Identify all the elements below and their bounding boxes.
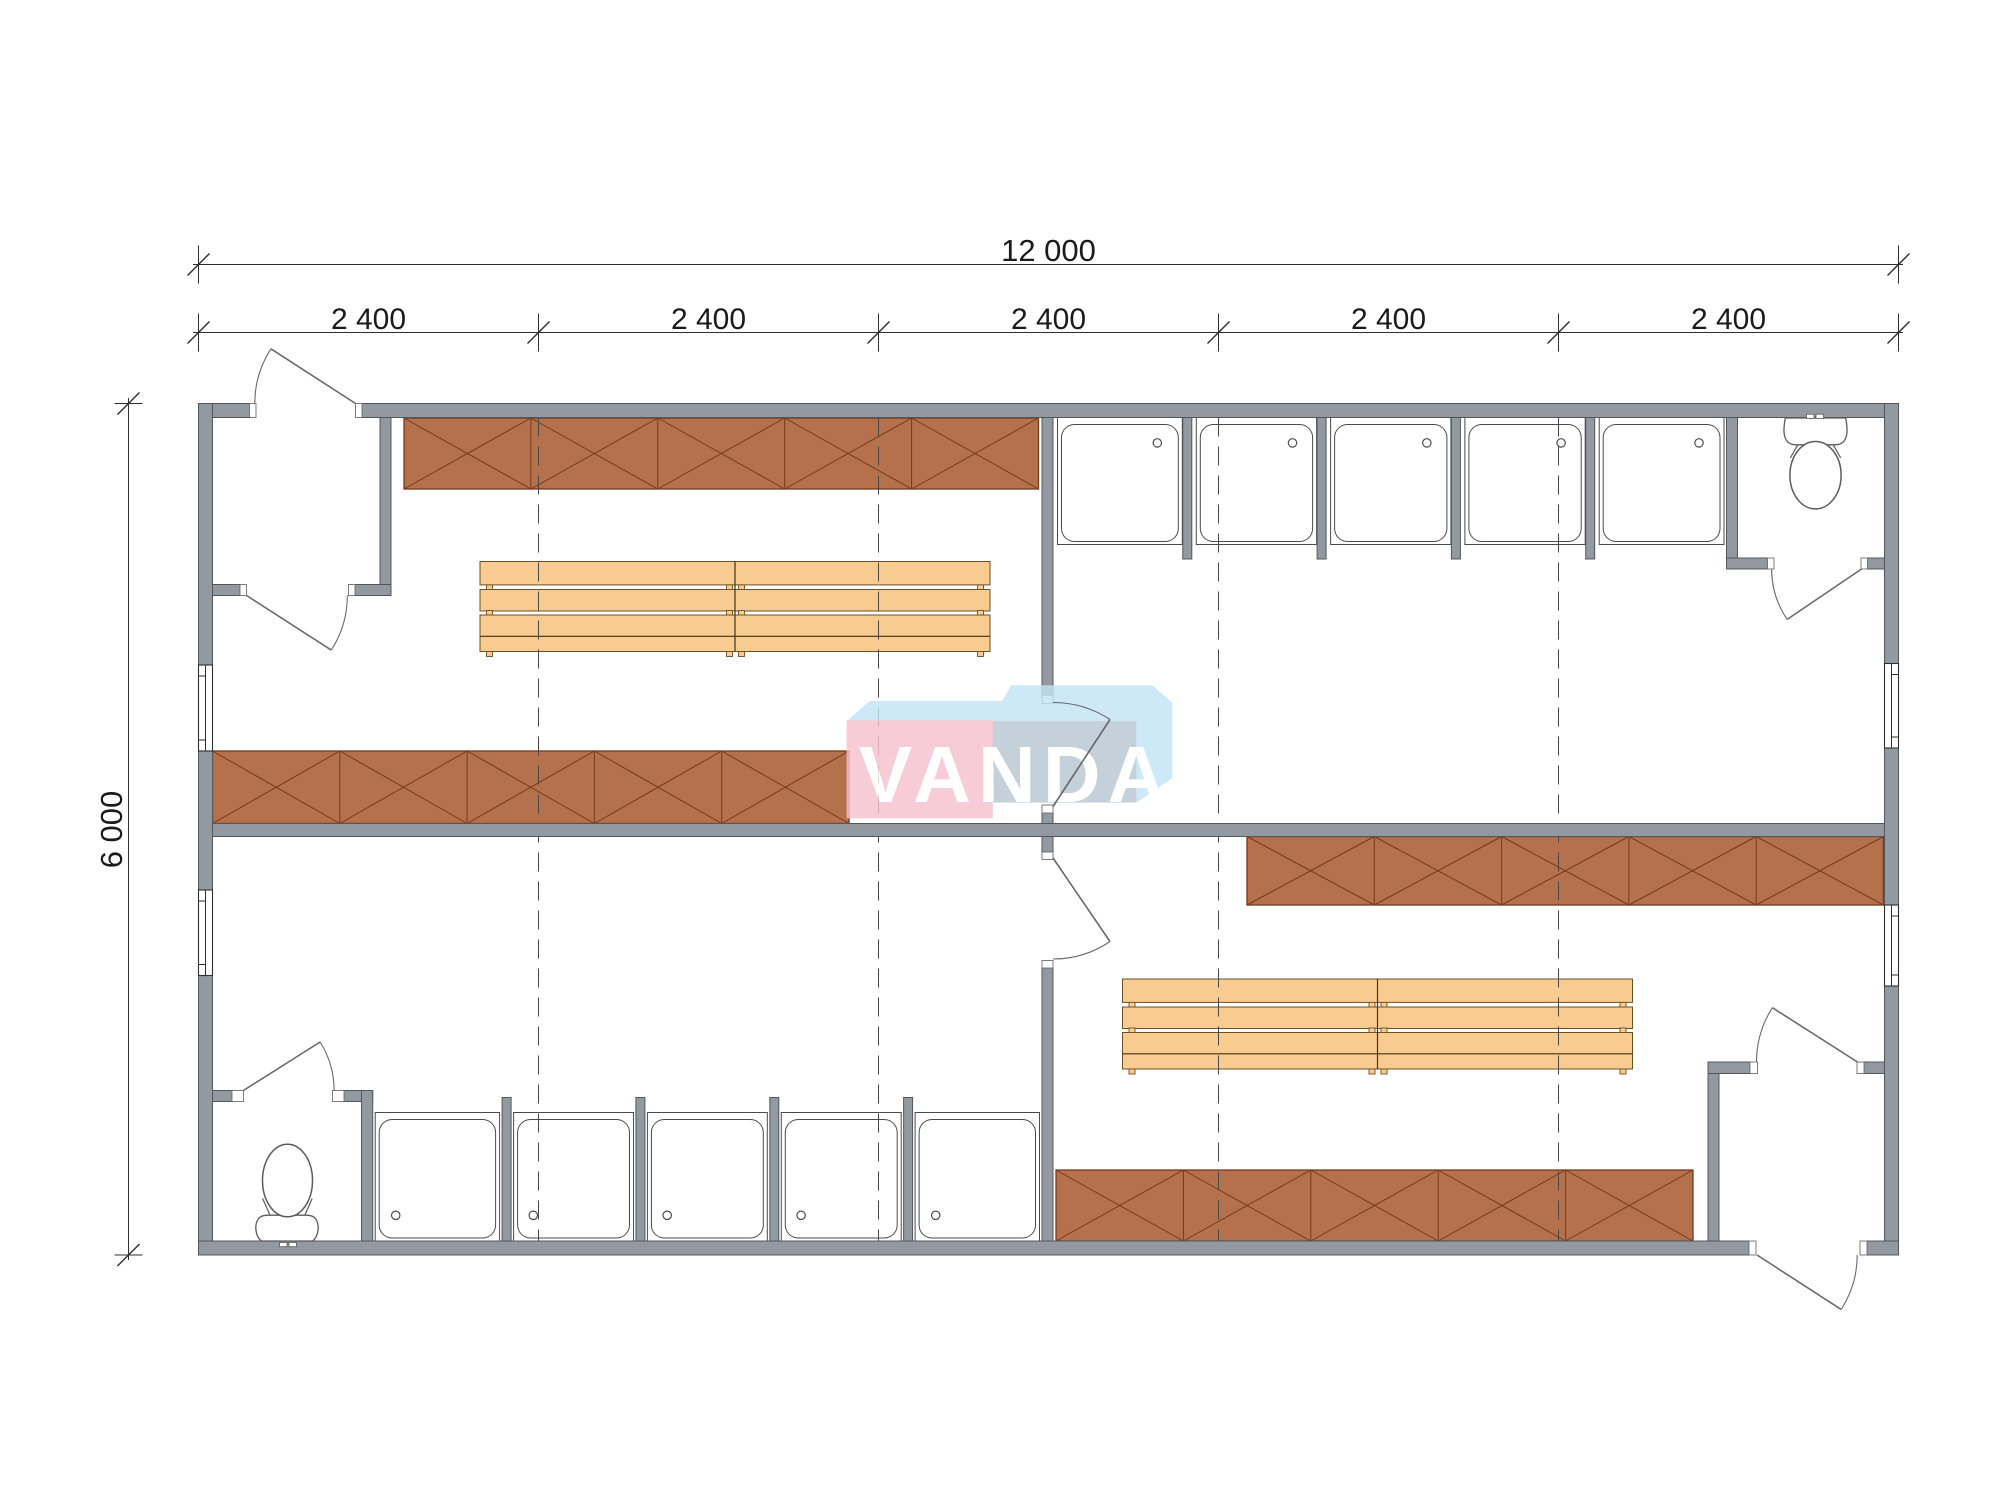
- svg-text:2 400: 2 400: [1351, 303, 1426, 336]
- svg-text:2 400: 2 400: [1011, 303, 1086, 336]
- svg-text:2 400: 2 400: [331, 303, 406, 336]
- svg-text:2 400: 2 400: [671, 303, 746, 336]
- svg-text:12 000: 12 000: [1001, 233, 1096, 268]
- svg-text:VANDA: VANDA: [859, 730, 1173, 819]
- svg-text:6 000: 6 000: [94, 791, 129, 869]
- svg-text:2 400: 2 400: [1691, 303, 1766, 336]
